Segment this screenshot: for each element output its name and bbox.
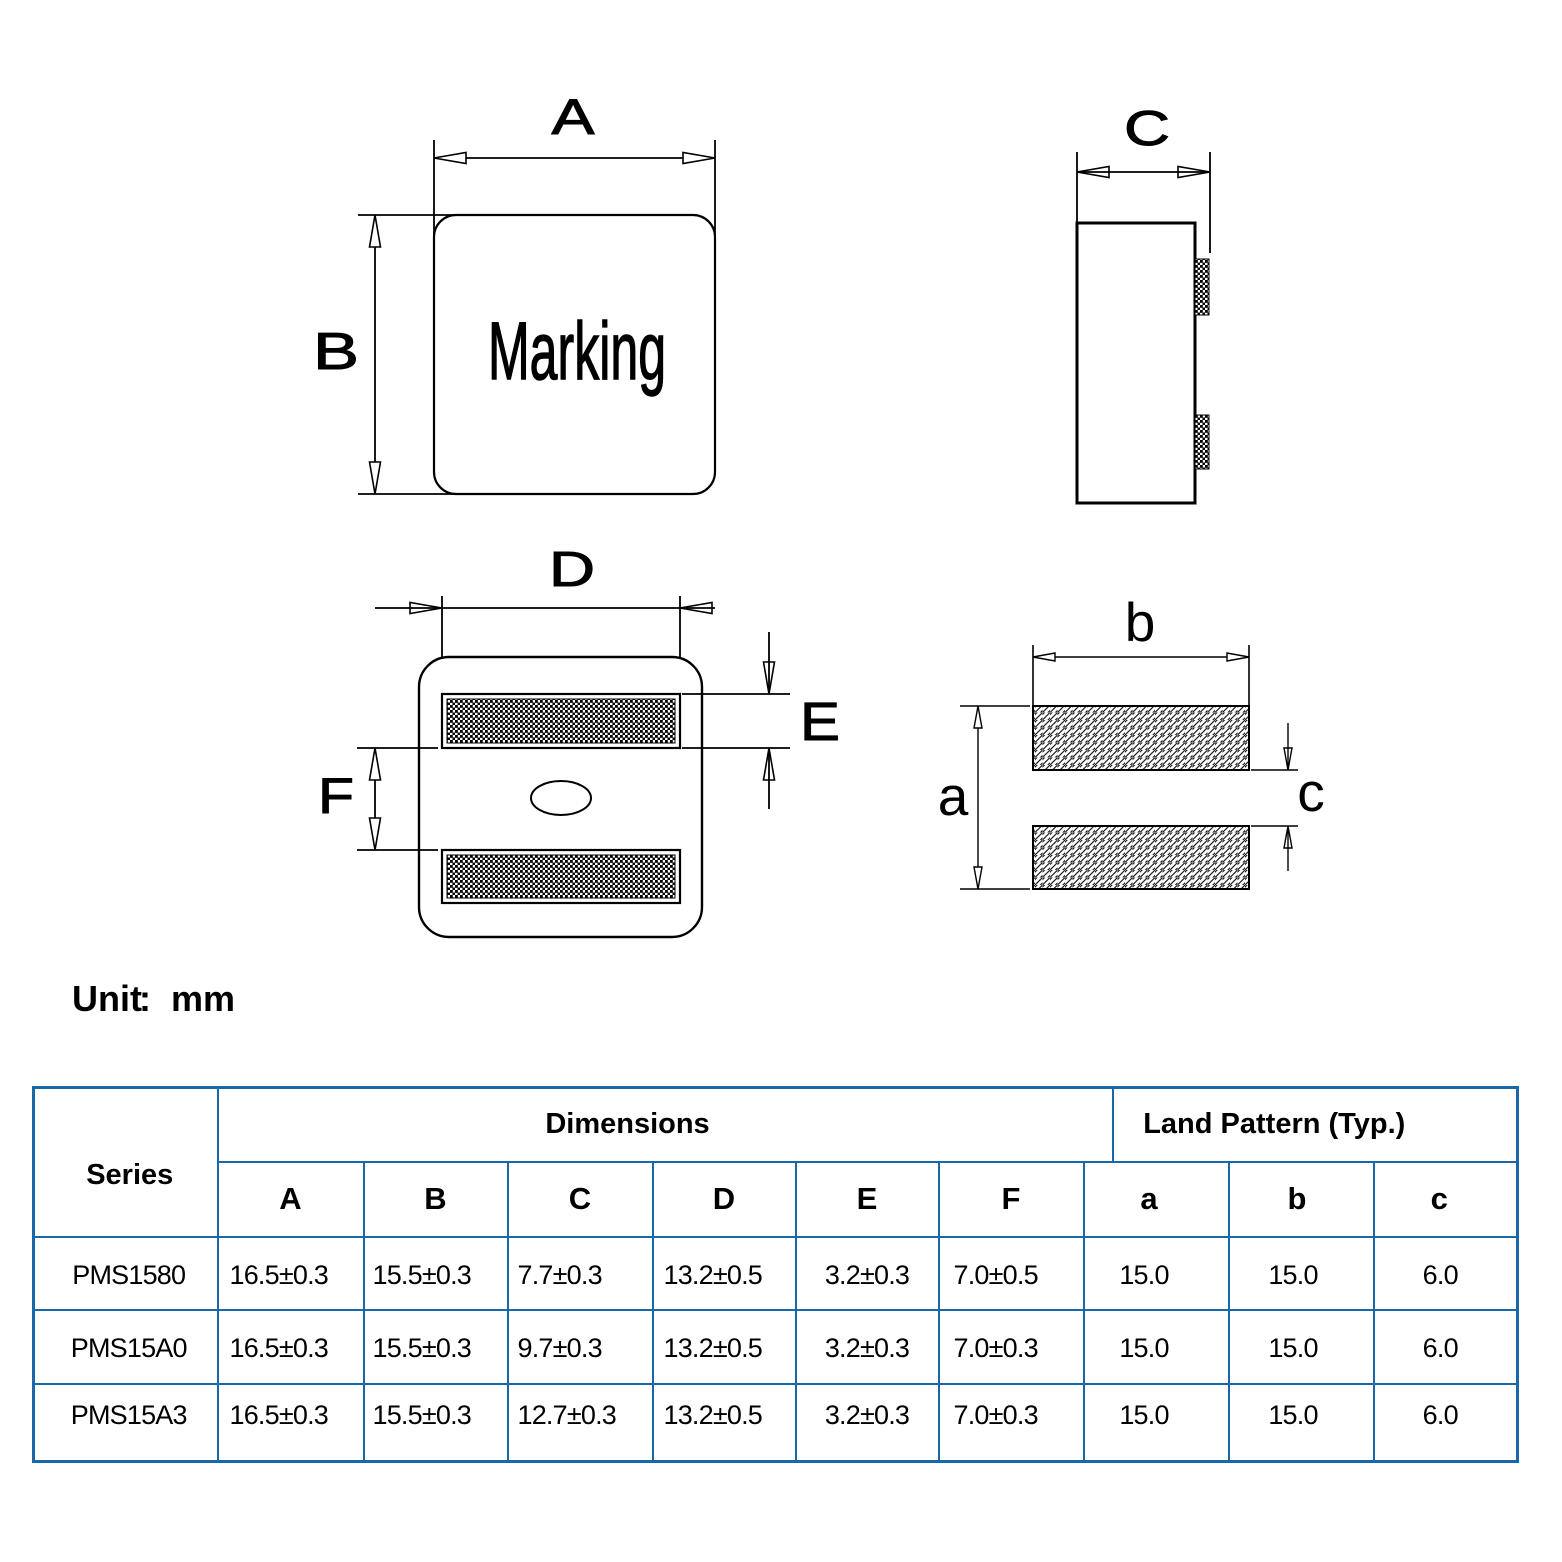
- svg-text:F: F: [318, 768, 354, 824]
- svg-text:A: A: [552, 89, 596, 145]
- svg-text:b: b: [1125, 591, 1156, 653]
- svg-text:E: E: [800, 692, 840, 752]
- svg-text:a: a: [938, 765, 969, 827]
- svg-text:B: B: [313, 323, 359, 381]
- svg-text:D: D: [549, 543, 595, 597]
- svg-text:Marking: Marking: [488, 307, 666, 398]
- svg-text:c: c: [1297, 761, 1325, 823]
- svg-text:C: C: [1124, 102, 1170, 156]
